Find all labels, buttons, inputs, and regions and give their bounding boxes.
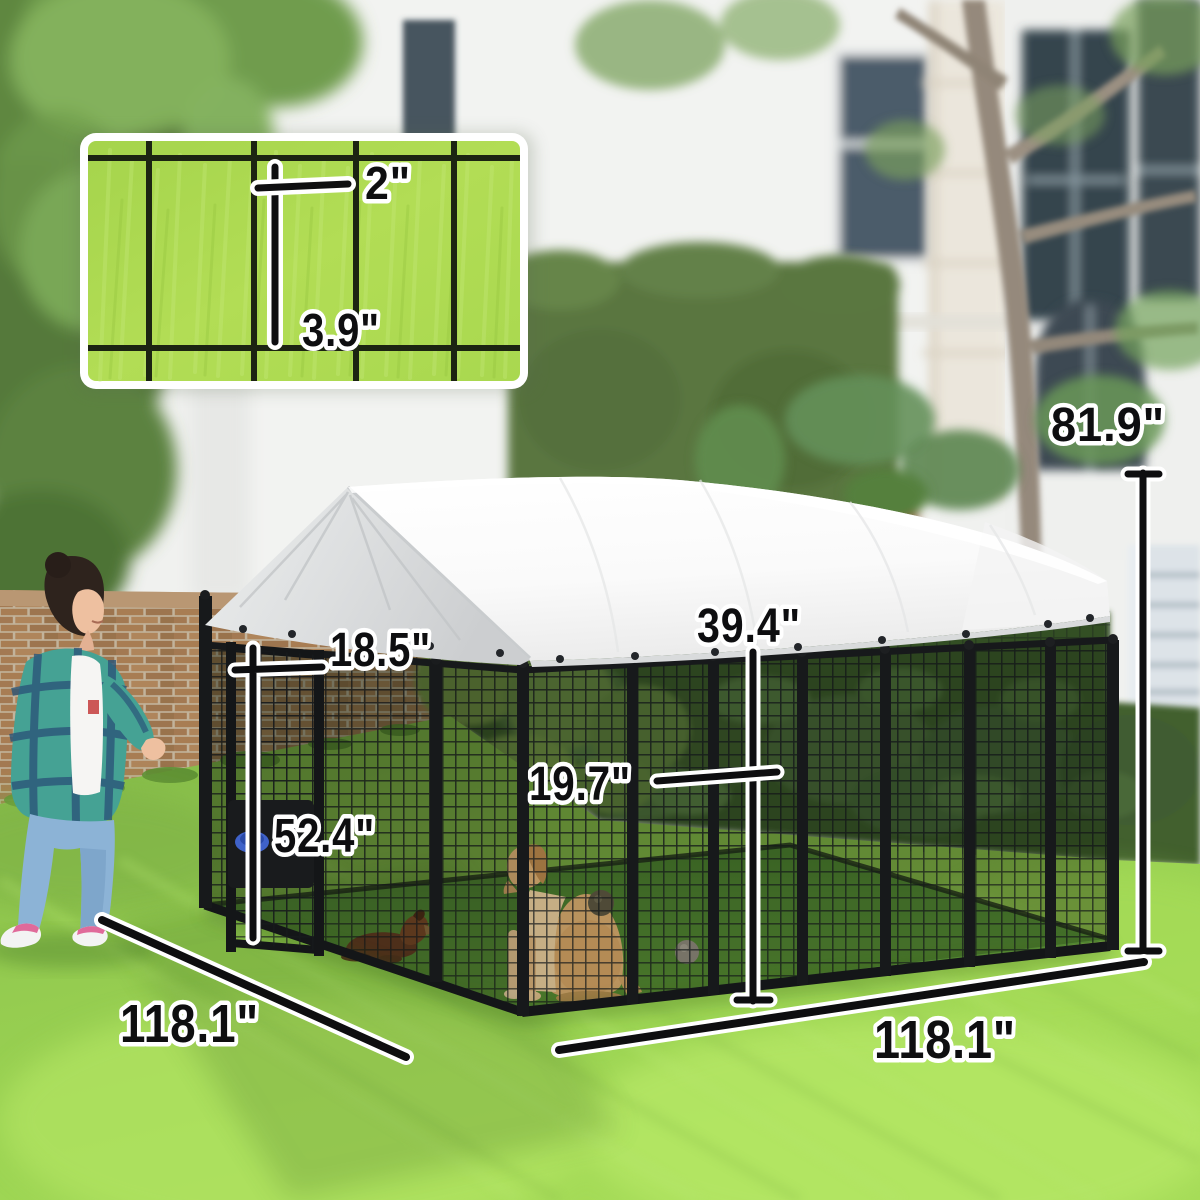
svg-text:19.7": 19.7" <box>529 758 631 811</box>
svg-text:39.4": 39.4" <box>697 600 801 653</box>
svg-text:52.4": 52.4" <box>274 810 375 863</box>
svg-text:3.9": 3.9" <box>302 304 380 356</box>
svg-text:18.5": 18.5" <box>330 624 431 677</box>
svg-text:118.1": 118.1" <box>120 994 259 1054</box>
svg-text:81.9": 81.9" <box>1051 399 1165 452</box>
svg-text:118.1": 118.1" <box>874 1010 1016 1070</box>
svg-text:2": 2" <box>365 157 411 209</box>
